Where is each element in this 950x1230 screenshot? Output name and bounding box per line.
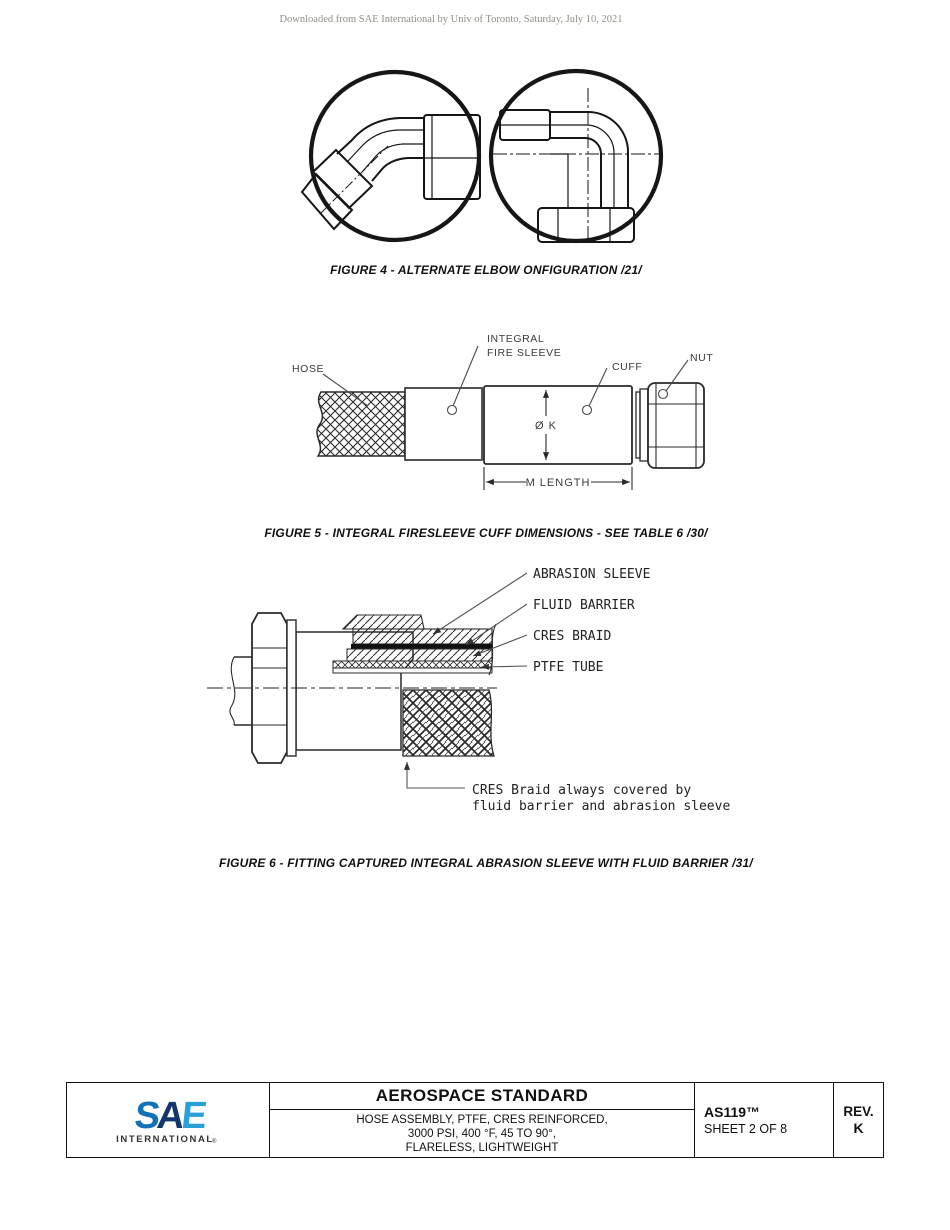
cuff-body	[484, 386, 632, 464]
cres-braid-label: CRES BRAID	[533, 629, 611, 644]
download-watermark-text: Downloaded from SAE International by Uni…	[279, 14, 622, 25]
cuff-label: CUFF	[612, 361, 642, 373]
revision-value: K	[853, 1120, 863, 1136]
cres-braid-note-line2: fluid barrier and abrasion sleeve	[472, 799, 730, 814]
diameter-k-dimension: Ø K	[535, 420, 557, 432]
svg-text:SAE: SAE	[133, 1095, 208, 1137]
aerospace-standard-heading: AEROSPACE STANDARD	[270, 1083, 694, 1109]
cres-braid-layer	[333, 661, 492, 668]
figure5-drawing: HOSE INTEGRAL FIRE SLEEVE CUFF NUT Ø K M…	[290, 330, 720, 500]
fluid-barrier-layer	[351, 644, 492, 649]
figure4-caption: FIGURE 4 - ALTERNATE ELBOW ONFIGURATION …	[22, 263, 950, 277]
standard-subtitle-line1: HOSE ASSEMBLY, PTFE, CRES REINFORCED,	[356, 1113, 607, 1127]
sae-logo-cell: SAE INTERNATIONAL ®	[67, 1083, 270, 1157]
nut-label: NUT	[690, 352, 713, 364]
download-watermark: Downloaded from SAE International by Uni…	[0, 14, 950, 25]
standard-title-cell: AEROSPACE STANDARD HOSE ASSEMBLY, PTFE, …	[270, 1083, 695, 1157]
cres-braid-note-line1: CRES Braid always covered by	[472, 783, 691, 798]
elbow-45-circle	[311, 72, 479, 240]
figure5-caption: FIGURE 5 - INTEGRAL FIRESLEEVE CUFF DIME…	[22, 526, 950, 540]
sae-logo: SAE INTERNATIONAL ®	[112, 1091, 224, 1149]
revision-label: REV.	[843, 1104, 873, 1119]
sheet-info: SHEET 2 OF 8	[704, 1122, 833, 1136]
abrasion-sleeve-label: ABRASION SLEEVE	[533, 567, 650, 582]
sae-logo-letter-e: E	[179, 1095, 207, 1137]
document-number-cell: AS119™ SHEET 2 OF 8	[695, 1083, 834, 1157]
document-page: Downloaded from SAE International by Uni…	[0, 0, 950, 1230]
standard-subtitle: HOSE ASSEMBLY, PTFE, CRES REINFORCED, 30…	[270, 1109, 694, 1157]
ptfe-tube-layer	[333, 668, 492, 673]
figure4-drawing	[300, 62, 670, 252]
fluid-barrier-label: FLUID BARRIER	[533, 598, 635, 613]
sae-logo-registered-mark: ®	[212, 1138, 217, 1145]
ptfe-tube-label: PTFE TUBE	[533, 660, 603, 675]
integral-fire-sleeve-label-line1: INTEGRAL	[487, 333, 544, 345]
exposed-cres-braid	[403, 690, 494, 756]
revision-cell: REV. K	[834, 1083, 883, 1157]
fire-sleeve-body	[405, 388, 482, 460]
sae-logo-wordmark: INTERNATIONAL	[116, 1134, 214, 1145]
integral-fire-sleeve-label-line2: FIRE SLEEVE	[487, 347, 561, 359]
document-number: AS119™	[704, 1104, 833, 1120]
m-length-dimension: M LENGTH	[526, 477, 591, 489]
elbow-90-circle	[491, 71, 661, 241]
figure6-caption: FIGURE 6 - FITTING CAPTURED INTEGRAL ABR…	[22, 856, 950, 870]
hose-label: HOSE	[292, 363, 324, 375]
title-block: SAE INTERNATIONAL ® AEROSPACE STANDARD H…	[66, 1082, 884, 1158]
standard-subtitle-line2: 3000 PSI, 400 °F, 45 TO 90°,	[408, 1127, 556, 1141]
standard-subtitle-line3: FLARELESS, LIGHTWEIGHT	[406, 1141, 559, 1155]
figure6-drawing: ABRASION SLEEVE FLUID BARRIER CRES BRAID…	[205, 560, 750, 820]
